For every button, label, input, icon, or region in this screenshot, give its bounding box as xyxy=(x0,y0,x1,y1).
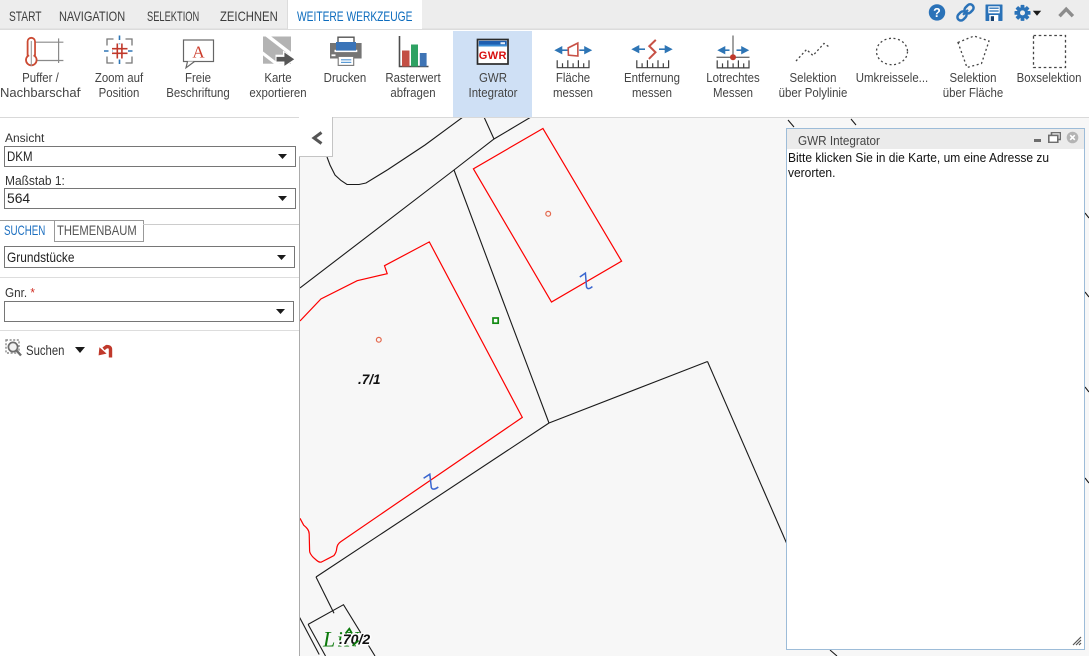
svg-text:?: ? xyxy=(933,6,941,20)
svg-text:A: A xyxy=(192,43,205,62)
svg-text:GWR: GWR xyxy=(479,50,507,62)
svg-text:.7/1: .7/1 xyxy=(358,372,381,387)
